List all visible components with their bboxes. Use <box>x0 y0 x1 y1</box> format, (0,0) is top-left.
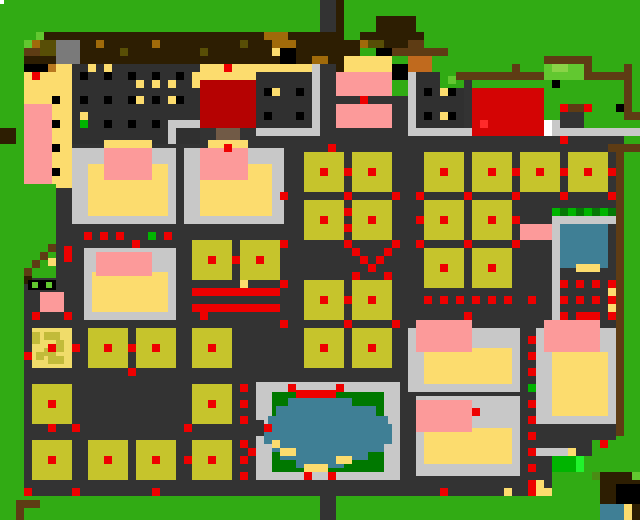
item-dot-red <box>152 488 160 496</box>
cabin-side <box>408 56 432 72</box>
house-f-courtyard <box>552 352 608 416</box>
item-dot-red <box>208 256 216 264</box>
item-dot-red <box>536 168 544 176</box>
item-dot-red <box>240 416 248 424</box>
item-dot-red <box>608 296 616 304</box>
item-dot-red <box>488 216 496 224</box>
item-dot-red <box>264 424 272 432</box>
dirt-texture <box>264 32 288 40</box>
item-dot-red <box>336 384 344 392</box>
factory-window <box>128 72 136 80</box>
item-dot-red <box>528 432 536 440</box>
item-dot-red <box>240 400 248 408</box>
item-dot-red <box>280 192 288 200</box>
item-dot-red <box>440 168 448 176</box>
house-e-courtyard <box>424 348 512 384</box>
item-dot-red <box>576 296 584 304</box>
pond-water <box>264 424 392 444</box>
map-pixel <box>0 0 4 4</box>
tree-trunk <box>48 244 56 252</box>
item-dot-red <box>352 248 360 256</box>
item-dot-red <box>248 448 256 456</box>
item-dot-red <box>184 424 192 432</box>
dirt-pit <box>616 484 640 504</box>
marker-bar-red <box>296 390 336 398</box>
item-dot-red <box>184 456 192 464</box>
pool-hedge <box>584 208 592 216</box>
item-dot-red <box>584 168 592 176</box>
pool-hedge <box>568 208 576 216</box>
tree-shadow <box>376 48 392 56</box>
item-dot-red <box>360 256 368 264</box>
garden-fence <box>456 72 544 80</box>
item-dot-red <box>368 264 376 272</box>
item-dot-red <box>592 280 600 288</box>
tree-canopy <box>376 16 416 32</box>
road-area <box>456 136 624 152</box>
pond-sand <box>336 456 352 464</box>
curb <box>256 128 320 136</box>
item-dot-red <box>32 312 40 320</box>
item-dot-red <box>440 296 448 304</box>
item-dot-red <box>32 72 40 80</box>
garden-fence <box>624 112 640 120</box>
tree-leaf <box>24 40 32 48</box>
item-dot-red <box>608 312 616 320</box>
factory-window <box>176 72 184 80</box>
dirt-steps <box>16 508 24 520</box>
tree-trunk <box>24 268 32 276</box>
pool-hedge <box>576 208 584 216</box>
bright-lawn <box>552 456 576 472</box>
house-g-courtyard <box>424 428 512 464</box>
factory-window <box>80 72 88 80</box>
item-dot-red <box>208 344 216 352</box>
item-dot-red <box>320 344 328 352</box>
cabin-roof <box>392 48 448 56</box>
bush <box>632 472 640 480</box>
marker-bar-red <box>64 246 72 262</box>
item-dot-red <box>512 192 520 200</box>
item-dot-red <box>528 352 536 360</box>
pool-hedge <box>592 208 600 216</box>
dirt-texture <box>272 40 296 48</box>
hotel-trim <box>48 64 56 72</box>
garden-shop-window <box>448 112 456 120</box>
item-dot-red <box>416 216 424 224</box>
item-dot-red <box>488 168 496 176</box>
item-dot-red <box>344 240 352 248</box>
pond-sand <box>280 448 296 456</box>
tree-fruit <box>48 258 56 266</box>
pink-stall <box>40 292 64 312</box>
pool-hedge <box>552 208 560 216</box>
item-dot-red <box>72 488 80 496</box>
gate-bar <box>568 104 584 112</box>
item-dot-red <box>384 272 392 280</box>
pink-kiosk <box>520 224 552 240</box>
red-building-door <box>480 120 488 128</box>
item-dot-red <box>440 216 448 224</box>
house-g-roof <box>416 400 472 432</box>
dark-building-window <box>264 88 272 96</box>
bush <box>592 472 600 480</box>
tree-trunk <box>24 48 40 56</box>
glowing-tile <box>576 456 584 472</box>
item-dot-red <box>416 192 424 200</box>
tree-canopy <box>344 40 360 48</box>
item-dot-red <box>104 456 112 464</box>
item-dot-green <box>148 232 156 240</box>
item-dot-red <box>48 344 56 352</box>
creature-eye <box>32 282 38 288</box>
house-b-roof <box>200 148 248 180</box>
factory-window <box>80 96 88 104</box>
swirl-pattern <box>48 356 64 364</box>
sand-edge <box>624 504 632 520</box>
factory-window-lit <box>168 96 176 104</box>
swirl-pattern <box>56 340 64 352</box>
item-dot-red <box>368 168 376 176</box>
marker-bar-red <box>192 288 280 296</box>
item-dot-red <box>472 296 480 304</box>
tree-leaf <box>360 40 368 48</box>
road-marking <box>544 488 552 496</box>
garden-fence <box>544 56 592 64</box>
factory-curb <box>168 128 176 144</box>
house-a-roof <box>104 148 152 180</box>
dark-building-window <box>296 88 304 96</box>
house-f-roof <box>544 320 600 352</box>
item-dot-red <box>560 280 568 288</box>
road-vertical <box>320 64 336 152</box>
apartment-window-lit <box>608 304 616 312</box>
item-dot-red <box>576 280 584 288</box>
item-dot-red <box>116 232 124 240</box>
item-dot-red <box>440 264 448 272</box>
item-dot-red <box>368 216 376 224</box>
item-dot-red <box>152 456 160 464</box>
item-dot-red <box>560 312 568 320</box>
hotel-awning <box>24 104 52 188</box>
curb <box>408 72 416 136</box>
factory-window <box>104 72 112 80</box>
dirt-path-east <box>608 144 640 152</box>
gray-shed <box>56 40 80 64</box>
dirt-texture <box>272 48 280 56</box>
item-dot-red <box>256 256 264 264</box>
red-building-west <box>200 80 256 128</box>
item-dot-red <box>224 144 232 152</box>
item-dot-red <box>288 384 296 392</box>
item-dot-red <box>152 344 160 352</box>
dirt-texture <box>120 48 128 56</box>
item-dot-red <box>344 208 352 216</box>
dark-building-window-lit <box>272 88 280 96</box>
item-dot-red <box>608 168 616 176</box>
factory-window-lit <box>168 80 176 88</box>
item-dot-red <box>72 424 80 432</box>
item-dot-red <box>512 168 520 176</box>
item-dot-red <box>560 104 568 112</box>
marker-bar-red <box>576 312 600 320</box>
item-dot-red <box>240 472 248 480</box>
item-dot-red <box>528 416 536 424</box>
item-dot-red <box>48 456 56 464</box>
pond-park-gate <box>256 420 264 436</box>
item-dot-red <box>384 248 392 256</box>
item-dot-red <box>464 312 472 320</box>
item-dot-red <box>200 312 208 320</box>
item-dot-red <box>208 400 216 408</box>
item-dot-red <box>280 280 288 288</box>
item-dot-red <box>560 136 568 144</box>
tree-leaf <box>32 40 40 48</box>
tree-branch <box>408 40 424 48</box>
tree-shadow <box>24 56 56 64</box>
swirl-pattern <box>32 332 40 344</box>
water-edge <box>600 504 624 520</box>
dark-building-window <box>264 112 272 120</box>
item-dot-red <box>424 296 432 304</box>
item-dot-red <box>360 96 368 104</box>
dark-building-ledge <box>256 64 312 72</box>
garden-shop-window-lit <box>440 88 448 96</box>
item-dot-red <box>280 320 288 328</box>
item-dot-red <box>392 320 400 328</box>
factory-window-lit <box>152 80 160 88</box>
item-dot-red <box>24 488 32 496</box>
item-dot-red <box>344 296 352 304</box>
item-dot-red <box>560 192 568 200</box>
road-area <box>560 112 584 128</box>
dirt-texture <box>152 40 160 48</box>
factory-window-lit <box>80 112 88 120</box>
pond-sand <box>272 440 280 448</box>
item-dot-red <box>64 312 72 320</box>
item-dot-red <box>504 296 512 304</box>
garden-stone <box>552 80 560 88</box>
item-dot-red <box>100 232 108 240</box>
pool-hedge <box>608 208 616 216</box>
dirt-steps <box>16 500 40 508</box>
item-dot-red <box>560 168 568 176</box>
item-dot-red <box>320 168 328 176</box>
item-dot-red <box>560 296 568 304</box>
item-dot-red <box>344 224 352 232</box>
factory-window-lit <box>88 64 96 72</box>
hotel-window <box>52 96 60 104</box>
factory-window <box>152 120 160 128</box>
road-marking <box>568 448 576 456</box>
garden-fence-post <box>512 64 520 72</box>
item-dot-red <box>600 440 608 448</box>
factory-curb <box>168 120 200 128</box>
item-dot-red <box>584 104 592 112</box>
dirt-texture <box>96 40 104 48</box>
pool-deck <box>552 224 560 328</box>
item-dot-red <box>48 424 56 432</box>
curb <box>312 64 320 136</box>
dirt-texture <box>240 40 248 48</box>
factory-window <box>152 72 160 80</box>
pond-sand <box>304 464 328 472</box>
road-marking <box>240 280 248 288</box>
item-dot-red <box>232 256 240 264</box>
factory-window <box>104 120 112 128</box>
item-dot-red <box>128 344 136 352</box>
garden-shop-window <box>424 112 432 120</box>
item-dot-red <box>48 400 56 408</box>
hotel-window <box>52 120 60 128</box>
factory-window <box>128 120 136 128</box>
item-dot-red <box>344 192 352 200</box>
item-dot-red <box>84 232 92 240</box>
pool-hedge <box>560 208 568 216</box>
house-e-roof <box>416 320 472 352</box>
item-dot-red <box>440 488 448 496</box>
item-dot-red <box>132 240 140 248</box>
pool-deck <box>552 216 616 224</box>
town-map <box>0 0 640 520</box>
item-dot-red <box>528 400 536 408</box>
factory-window <box>128 96 136 104</box>
pool-hedge <box>600 208 608 216</box>
factory-window <box>104 96 112 104</box>
item-dot-red <box>328 472 336 480</box>
swimming-pool <box>560 224 608 268</box>
garden-shop-window-lit <box>440 112 448 120</box>
dirt-texture <box>200 48 208 56</box>
item-dot-green <box>528 384 536 392</box>
pink-building-upper <box>336 72 392 96</box>
item-dot-red <box>320 216 328 224</box>
item-dot-red <box>328 144 336 152</box>
item-dot-red <box>528 368 536 376</box>
item-dot-red <box>464 192 472 200</box>
pink-building-lower <box>336 104 392 128</box>
factory-window-lit <box>104 64 112 72</box>
tree-leaf <box>368 40 384 48</box>
factory-window <box>152 96 160 104</box>
building-corner <box>544 120 552 136</box>
factory-window <box>176 96 184 104</box>
hotel-window <box>52 168 60 176</box>
apartment-window-lit <box>608 288 616 296</box>
road-marking <box>504 488 512 496</box>
tree-leaf <box>36 32 44 40</box>
item-dot-red <box>128 368 136 376</box>
road-marking <box>536 480 544 496</box>
pool-sand <box>576 264 600 272</box>
item-dot-red <box>240 384 248 392</box>
factory-window-lit <box>136 96 144 104</box>
house-c-roof <box>96 252 152 276</box>
item-dot-red <box>464 240 472 248</box>
factory-window-lit <box>192 72 200 88</box>
road-south-stub <box>320 496 336 520</box>
cabin-door <box>392 64 408 80</box>
hotel-roof-shadow <box>24 64 48 72</box>
garden-shop-bush <box>448 76 456 84</box>
item-dot-red <box>352 272 360 280</box>
item-dot-red <box>224 64 232 72</box>
item-dot-red <box>416 240 424 248</box>
item-dot-red <box>280 240 288 248</box>
tree-trunk <box>32 260 40 268</box>
swirl-pattern <box>44 332 60 340</box>
item-dot-red <box>592 296 600 304</box>
curb <box>552 128 640 136</box>
item-dot-red <box>304 472 312 480</box>
item-dot-red <box>368 296 376 304</box>
item-dot-red <box>344 168 352 176</box>
red-building-east <box>472 88 544 136</box>
item-dot-red <box>104 344 112 352</box>
marker-bar-red <box>192 304 280 312</box>
item-dot-red <box>528 336 536 344</box>
item-dot-red <box>24 352 32 360</box>
item-dot-red <box>528 296 536 304</box>
item-dot-red <box>488 264 496 272</box>
item-dot-red <box>240 440 248 448</box>
edge-rock <box>0 128 16 144</box>
item-dot-green <box>80 120 88 128</box>
item-dot-red <box>528 448 536 456</box>
garden-shop-window <box>424 88 432 96</box>
item-dot-red <box>368 344 376 352</box>
item-dot-red <box>320 296 328 304</box>
swirl-pattern <box>36 352 44 360</box>
garden-fence-post <box>584 64 592 72</box>
factory-window-lit <box>136 80 144 88</box>
item-dot-red <box>456 296 464 304</box>
item-dot-red <box>72 344 80 352</box>
item-dot-red <box>376 256 384 264</box>
marker-bar-red <box>528 480 536 496</box>
house-c-courtyard <box>92 272 168 312</box>
item-dot-red <box>240 456 248 464</box>
item-dot-red <box>512 216 520 224</box>
garden-shop-window <box>448 88 456 96</box>
tree-canopy <box>40 40 56 56</box>
item-dot-red <box>472 408 480 416</box>
hotel-window <box>52 144 60 152</box>
item-dot-red <box>608 192 616 200</box>
item-dot-red <box>608 280 616 288</box>
house-a-trim <box>104 140 152 148</box>
dirt-road-east <box>616 152 624 436</box>
creature-eye <box>46 282 52 288</box>
dark-building-window <box>296 112 304 120</box>
item-dot-red <box>344 320 352 328</box>
dirt-shadow <box>280 48 296 64</box>
item-dot-red <box>164 232 172 240</box>
curb <box>408 128 472 136</box>
item-dot-red <box>512 240 520 248</box>
tree-trunk <box>40 252 48 260</box>
item-dot-red <box>392 192 400 200</box>
item-dot-red <box>208 456 216 464</box>
item-dot-red <box>488 296 496 304</box>
garden-hedge-light <box>552 64 568 72</box>
item-dot-red <box>528 464 536 472</box>
item-dot-red <box>392 240 400 248</box>
garden-stone <box>616 104 624 112</box>
dirt-texture <box>312 56 328 64</box>
